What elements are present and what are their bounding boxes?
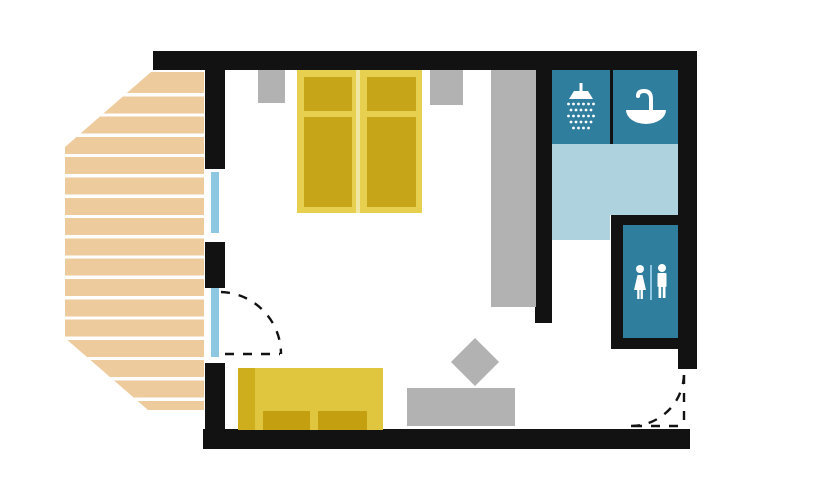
sofa-cushion-a — [263, 411, 310, 430]
bathroom-floor-left — [552, 144, 610, 240]
bed-pillow-left — [304, 77, 352, 111]
nightstand-left — [258, 70, 285, 103]
terrace-door-arc — [221, 292, 281, 354]
wardrobe — [491, 70, 536, 307]
sofa-armrest — [238, 368, 255, 430]
wall-left-mid — [205, 242, 225, 288]
entry-door-arc — [631, 373, 684, 426]
bathroom-floor-right — [610, 144, 678, 215]
wall-wc-left — [611, 225, 623, 349]
wall-wc-top — [611, 215, 678, 225]
side-table-diamond — [451, 338, 499, 386]
wc-room — [623, 225, 678, 338]
wall-left-upper — [205, 70, 225, 169]
bed-pillow-right — [367, 77, 416, 111]
low-table — [407, 388, 515, 426]
wall-wc-bottom — [611, 338, 690, 349]
wall-right — [678, 51, 697, 369]
terrace-plank-gaps — [65, 72, 204, 410]
wall-top — [153, 51, 697, 70]
bed-split-line — [356, 70, 360, 213]
bed-mattress-right — [367, 117, 416, 207]
shower-area — [552, 70, 610, 144]
sofa-cushion-b — [318, 411, 367, 430]
wall-bottom — [203, 429, 690, 449]
bed-mattress-left — [304, 117, 352, 207]
sink-area — [613, 70, 678, 144]
terrace-deck — [65, 72, 204, 410]
nightstand-right — [430, 70, 463, 105]
sink-icon — [624, 86, 668, 128]
wall-bathroom-divider — [535, 70, 552, 323]
window-glass — [211, 172, 219, 233]
shower-icon — [561, 83, 601, 131]
wc-toilets-icon — [629, 256, 673, 308]
floor-plan — [0, 0, 820, 492]
terrace-door-leaf — [211, 288, 219, 357]
